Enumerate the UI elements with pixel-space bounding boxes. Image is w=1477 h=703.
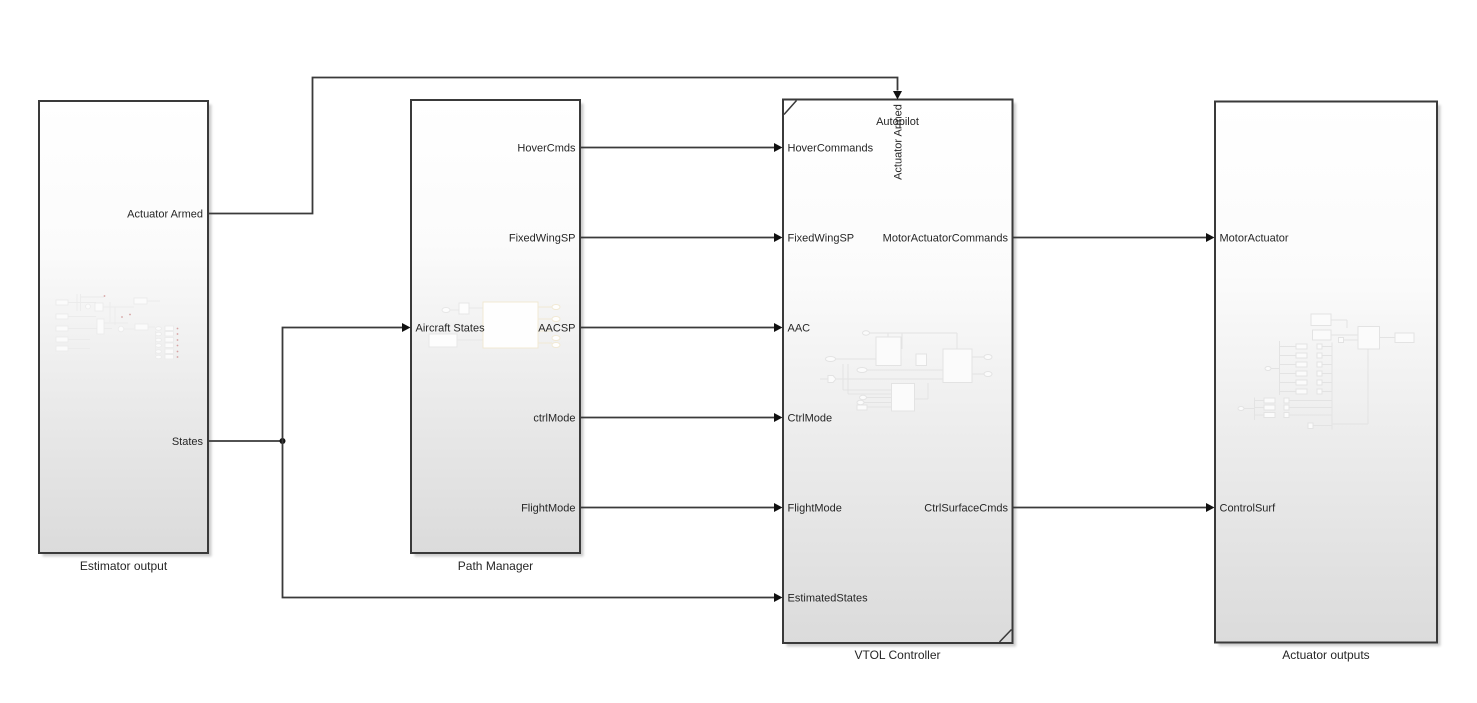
svg-text:Estimator output: Estimator output <box>80 559 168 573</box>
svg-text:MotorActuatorCommands: MotorActuatorCommands <box>883 233 1009 245</box>
svg-text:ctrlMode: ctrlMode <box>533 413 575 425</box>
svg-text:CtrlMode: CtrlMode <box>788 413 833 425</box>
svg-text:AACSP: AACSP <box>538 323 575 335</box>
svg-text:MotorActuator: MotorActuator <box>1220 233 1289 245</box>
svg-text:ControlSurf: ControlSurf <box>1220 503 1277 515</box>
svg-text:FixedWingSP: FixedWingSP <box>788 233 855 245</box>
svg-text:Path Manager: Path Manager <box>458 559 533 573</box>
svg-text:States: States <box>172 436 204 448</box>
svg-text:EstimatedStates: EstimatedStates <box>788 593 869 605</box>
svg-text:FlightMode: FlightMode <box>521 503 575 515</box>
svg-text:AAC: AAC <box>788 323 811 335</box>
svg-text:Actuator Armed: Actuator Armed <box>893 104 905 180</box>
svg-text:Aircraft States: Aircraft States <box>416 323 486 335</box>
svg-text:Actuator outputs: Actuator outputs <box>1282 648 1369 662</box>
svg-text:HoverCommands: HoverCommands <box>788 143 874 155</box>
svg-text:FlightMode: FlightMode <box>788 503 842 515</box>
svg-text:CtrlSurfaceCmds: CtrlSurfaceCmds <box>924 503 1008 515</box>
svg-text:HoverCmds: HoverCmds <box>517 143 576 155</box>
svg-text:FixedWingSP: FixedWingSP <box>509 233 576 245</box>
svg-text:VTOL Controller: VTOL Controller <box>854 648 940 662</box>
svg-text:Actuator Armed: Actuator Armed <box>127 209 203 221</box>
